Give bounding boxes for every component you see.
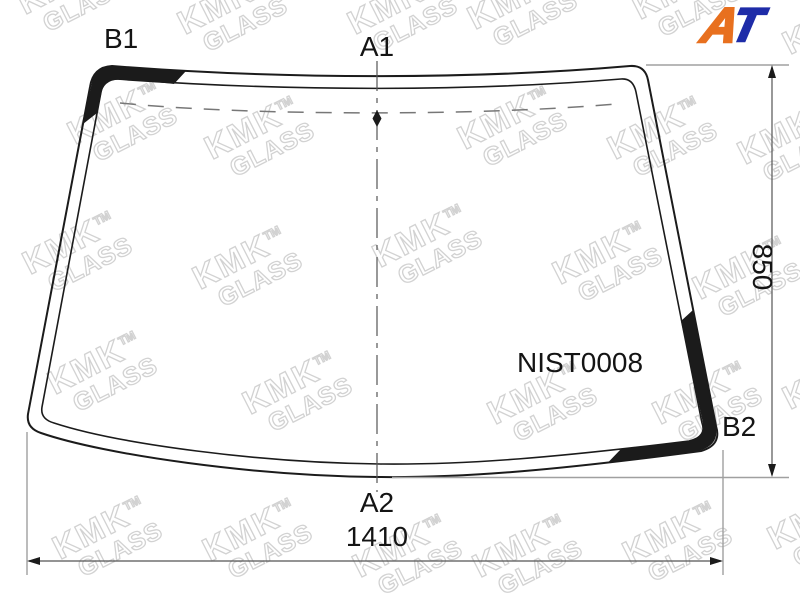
- kmk-glass-watermark: KMKTMGLASS: [46, 486, 167, 589]
- bottom-right-tint-band: [608, 310, 716, 463]
- kmk-glass-watermark: KMKTMGLASS: [16, 201, 137, 304]
- kmk-glass-watermark: KMKTMGLASS: [761, 476, 800, 579]
- dim-arrow-up: [768, 65, 776, 78]
- label-a1: A1: [337, 32, 417, 63]
- kmk-glass-watermark: KMKTMGLASS: [61, 71, 182, 174]
- molding-dashed-line: [120, 103, 616, 113]
- dim-arrow-left: [27, 557, 40, 565]
- label-b2: B2: [722, 412, 756, 443]
- label-b1: B1: [104, 24, 138, 55]
- label-a2: A2: [337, 488, 417, 519]
- kmk-glass-watermark: KMKTMGLASS: [198, 86, 319, 189]
- kmk-glass-watermark: KMKTMGLASS: [171, 0, 292, 64]
- kmk-glass-watermark: KMKTMGLASS: [236, 341, 357, 444]
- part-number: NIST0008: [517, 348, 643, 379]
- kmk-glass-watermark: KMKTMGLASS: [41, 321, 162, 424]
- kmk-glass-watermark: KMKTMGLASS: [186, 216, 307, 319]
- svg-text:KMKTM: KMKTM: [776, 339, 800, 417]
- kmk-glass-watermark: KMKTMGLASS: [601, 86, 722, 189]
- kmk-glass-watermark: KMKTMGLASS: [686, 226, 800, 329]
- kmk-glass-watermark: KMKTMGLASS: [461, 0, 582, 59]
- kmk-glass-watermark: KMKTMGLASS: [196, 488, 317, 591]
- dim-arrow-down: [768, 464, 776, 477]
- dimension-width-value: 1410: [337, 522, 417, 553]
- kmk-glass-watermark: KMKTMGLASS: [451, 76, 572, 179]
- kmk-glass-watermark: KMKTMGLASS: [546, 211, 667, 314]
- dimension-height-value: 850: [747, 232, 777, 302]
- kmk-glass-watermark: KMKTMGLASS: [731, 91, 800, 194]
- kmk-glass-watermark: KMKTMGLASS: [776, 336, 800, 439]
- windshield-diagram: KMKTMGLASSKMKTMGLASSKMKTMGLASSKMKTMGLASS…: [0, 0, 800, 600]
- kmk-glass-watermark: KMKTMGLASS: [366, 194, 487, 297]
- at-logo: T A: [703, 0, 783, 54]
- kmk-glass-watermark: KMKTMGLASS: [466, 504, 587, 600]
- kmk-glass-watermark: KMKTMGLASS: [616, 491, 737, 594]
- dim-arrow-right: [710, 557, 723, 565]
